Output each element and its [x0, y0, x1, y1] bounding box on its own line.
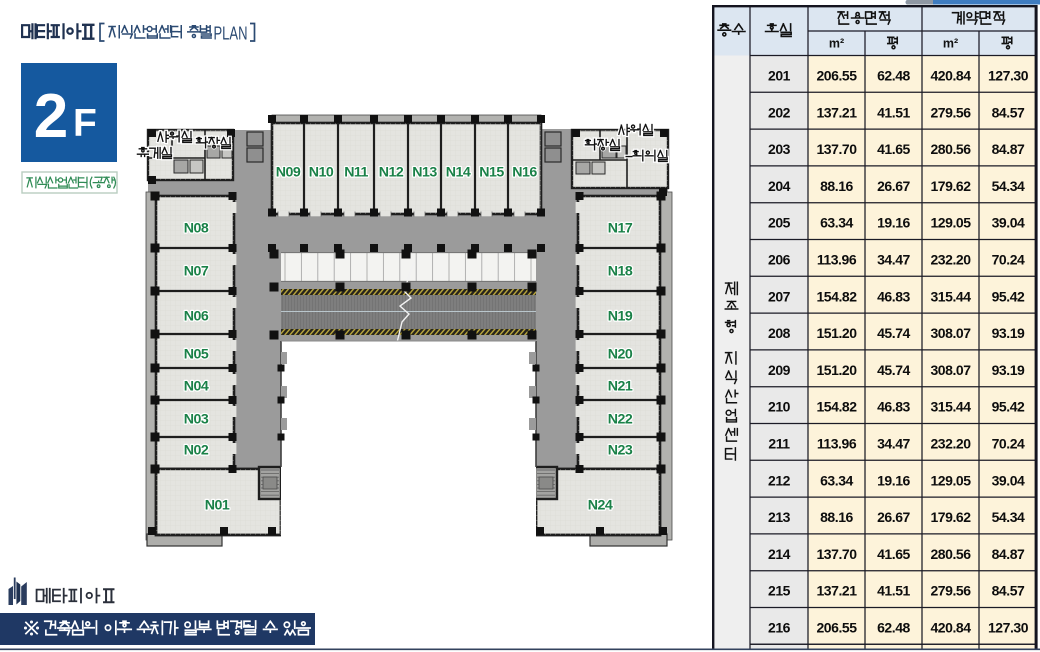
svg-text:N21: N21 [608, 379, 633, 395]
svg-text:N04: N04 [184, 379, 209, 395]
svg-text:62.48: 62.48 [877, 620, 910, 636]
svg-text:137.70: 137.70 [816, 546, 857, 562]
svg-text:137.70: 137.70 [816, 141, 857, 157]
svg-text:N17: N17 [608, 221, 633, 237]
svg-text:211: 211 [768, 436, 790, 452]
svg-text:41.65: 41.65 [877, 141, 910, 157]
svg-text:N14: N14 [446, 165, 471, 181]
svg-text:214: 214 [768, 546, 791, 562]
svg-text:N18: N18 [608, 264, 633, 280]
svg-text:280.56: 280.56 [930, 546, 971, 562]
svg-text:279.56: 279.56 [930, 583, 971, 599]
svg-text:19.16: 19.16 [877, 472, 910, 488]
svg-text:N20: N20 [608, 347, 633, 363]
svg-text:206.55: 206.55 [816, 68, 857, 84]
svg-text:39.04: 39.04 [992, 472, 1025, 488]
svg-text:206.55: 206.55 [816, 620, 857, 636]
svg-text:201: 201 [768, 68, 791, 84]
svg-text:54.34: 54.34 [992, 509, 1025, 525]
svg-text:204: 204 [768, 178, 791, 194]
svg-text:208: 208 [768, 325, 791, 341]
svg-text:41.65: 41.65 [877, 546, 910, 562]
svg-text:N06: N06 [184, 309, 209, 325]
svg-text:N13: N13 [412, 165, 437, 181]
svg-text:46.83: 46.83 [877, 399, 910, 415]
svg-text:213: 213 [768, 509, 791, 525]
svg-text:215: 215 [768, 583, 791, 599]
svg-text:N22: N22 [608, 412, 633, 428]
svg-text:N23: N23 [608, 443, 633, 459]
svg-text:212: 212 [768, 472, 791, 488]
svg-text:34.47: 34.47 [877, 252, 910, 268]
svg-text:203: 203 [768, 141, 791, 157]
svg-text:PLAN: PLAN [214, 24, 248, 44]
svg-text:N15: N15 [479, 165, 504, 181]
svg-text:88.16: 88.16 [820, 178, 853, 194]
svg-text:113.96: 113.96 [817, 436, 857, 452]
svg-text:45.74: 45.74 [877, 325, 910, 341]
svg-text:308.07: 308.07 [930, 325, 971, 341]
svg-text:26.67: 26.67 [877, 178, 910, 194]
svg-text:84.87: 84.87 [992, 141, 1025, 157]
svg-text:216: 216 [768, 620, 791, 636]
svg-text:N03: N03 [184, 412, 209, 428]
svg-text:63.34: 63.34 [820, 215, 853, 231]
svg-text:N12: N12 [379, 165, 404, 181]
svg-text:88.16: 88.16 [820, 509, 853, 525]
svg-text:151.20: 151.20 [816, 362, 857, 378]
svg-text:137.21: 137.21 [816, 104, 857, 120]
svg-text:420.84: 420.84 [930, 68, 971, 84]
svg-text:95.42: 95.42 [992, 399, 1025, 415]
svg-text:129.05: 129.05 [930, 472, 971, 488]
svg-text:154.82: 154.82 [816, 288, 857, 304]
svg-text:54.34: 54.34 [992, 178, 1025, 194]
svg-text:127.30: 127.30 [988, 68, 1029, 84]
svg-text:232.20: 232.20 [930, 436, 971, 452]
svg-text:N09: N09 [276, 165, 301, 181]
svg-text:N08: N08 [184, 221, 209, 237]
svg-text:N05: N05 [184, 347, 209, 363]
svg-text:154.82: 154.82 [816, 399, 857, 415]
svg-text:63.34: 63.34 [820, 472, 853, 488]
svg-text:34.47: 34.47 [877, 436, 910, 452]
svg-text:19.16: 19.16 [877, 215, 910, 231]
svg-text:46.83: 46.83 [877, 288, 910, 304]
svg-text:N24: N24 [588, 498, 613, 514]
svg-text:207: 207 [768, 288, 791, 304]
svg-text:m²: m² [829, 37, 844, 51]
svg-text:41.51: 41.51 [877, 104, 910, 120]
svg-text:205: 205 [768, 215, 791, 231]
svg-text:151.20: 151.20 [816, 325, 857, 341]
svg-text:N10: N10 [309, 165, 334, 181]
svg-text:N07: N07 [184, 264, 209, 280]
svg-text:N01: N01 [205, 498, 230, 514]
svg-text:113.96: 113.96 [817, 252, 857, 268]
svg-text:84.57: 84.57 [992, 583, 1025, 599]
svg-text:N19: N19 [608, 309, 633, 325]
svg-text:41.51: 41.51 [877, 583, 910, 599]
svg-text:179.62: 179.62 [930, 509, 971, 525]
svg-text:93.19: 93.19 [992, 325, 1025, 341]
svg-text:420.84: 420.84 [930, 620, 971, 636]
svg-text:232.20: 232.20 [930, 252, 971, 268]
svg-text:210: 210 [768, 399, 791, 415]
svg-text:2: 2 [34, 82, 68, 151]
svg-text:N11: N11 [344, 165, 368, 181]
svg-text:45.74: 45.74 [877, 362, 910, 378]
svg-text:70.24: 70.24 [992, 252, 1025, 268]
svg-text:93.19: 93.19 [992, 362, 1025, 378]
svg-text:95.42: 95.42 [992, 288, 1025, 304]
svg-text:84.87: 84.87 [992, 546, 1025, 562]
svg-text:315.44: 315.44 [930, 399, 971, 415]
svg-text:62.48: 62.48 [877, 68, 910, 84]
svg-text:137.21: 137.21 [816, 583, 857, 599]
svg-text:209: 209 [768, 362, 791, 378]
svg-text:84.57: 84.57 [992, 104, 1025, 120]
svg-text:280.56: 280.56 [930, 141, 971, 157]
svg-text:F: F [73, 102, 97, 145]
svg-text:N16: N16 [512, 165, 537, 181]
svg-text:70.24: 70.24 [992, 436, 1025, 452]
svg-text:179.62: 179.62 [930, 178, 971, 194]
svg-text:279.56: 279.56 [930, 104, 971, 120]
svg-text:315.44: 315.44 [930, 288, 971, 304]
svg-text:m²: m² [943, 37, 958, 51]
svg-text:308.07: 308.07 [930, 362, 971, 378]
svg-text:26.67: 26.67 [877, 509, 910, 525]
svg-text:39.04: 39.04 [992, 215, 1025, 231]
svg-text:206: 206 [768, 252, 791, 268]
svg-text:127.30: 127.30 [988, 620, 1029, 636]
svg-text:129.05: 129.05 [930, 215, 971, 231]
svg-text:202: 202 [768, 104, 791, 120]
svg-text:N02: N02 [184, 443, 209, 459]
